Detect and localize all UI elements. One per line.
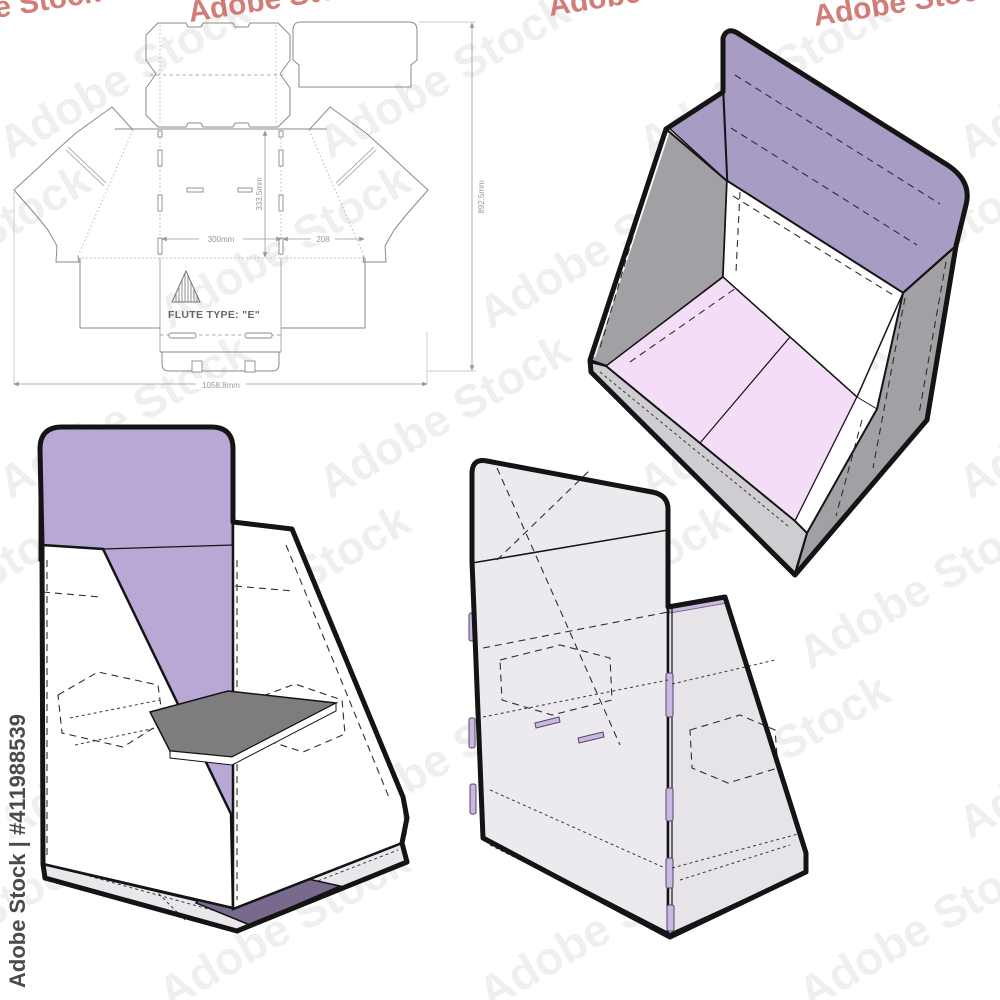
assembled-view-front <box>40 427 407 931</box>
watermark-red-text: Adobe Stock <box>811 0 998 33</box>
dimension-label: 333.5mm <box>255 177 264 211</box>
watermark-red-text: Adobe Stock <box>0 0 103 37</box>
watermark-tile: Adobe Stock <box>949 0 1000 169</box>
watermark-tile: Adobe Stock <box>789 833 1000 1000</box>
header-panel <box>40 427 233 560</box>
stock-diagram-image: Adobe StockAdobe StockAdobe StockAdobe S… <box>0 0 1000 1000</box>
back-panel <box>472 460 668 933</box>
watermark-tile: Adobe Stock <box>0 153 99 339</box>
watermark-tile: Adobe Stock <box>309 0 579 169</box>
dimension-label: 892.5mm <box>477 180 486 214</box>
watermark-red-text: Adobe Stock <box>546 0 733 23</box>
watermark-tile: Adobe Stock <box>949 663 1000 849</box>
watermark-tile: Adobe Stock <box>949 323 1000 509</box>
watermark-tile: Adobe Stock <box>0 0 259 169</box>
flute-type-label: FLUTE TYPE: "E" <box>168 309 260 321</box>
dimension-label: 300mm <box>208 235 235 244</box>
dimension-label: 208 <box>316 235 330 244</box>
stock-id-label: Adobe Stock | #411988539 <box>5 714 30 988</box>
diagram-svg: Adobe StockAdobe StockAdobe StockAdobe S… <box>0 0 1000 1000</box>
dimension-label: 1058.8mm <box>202 381 240 390</box>
